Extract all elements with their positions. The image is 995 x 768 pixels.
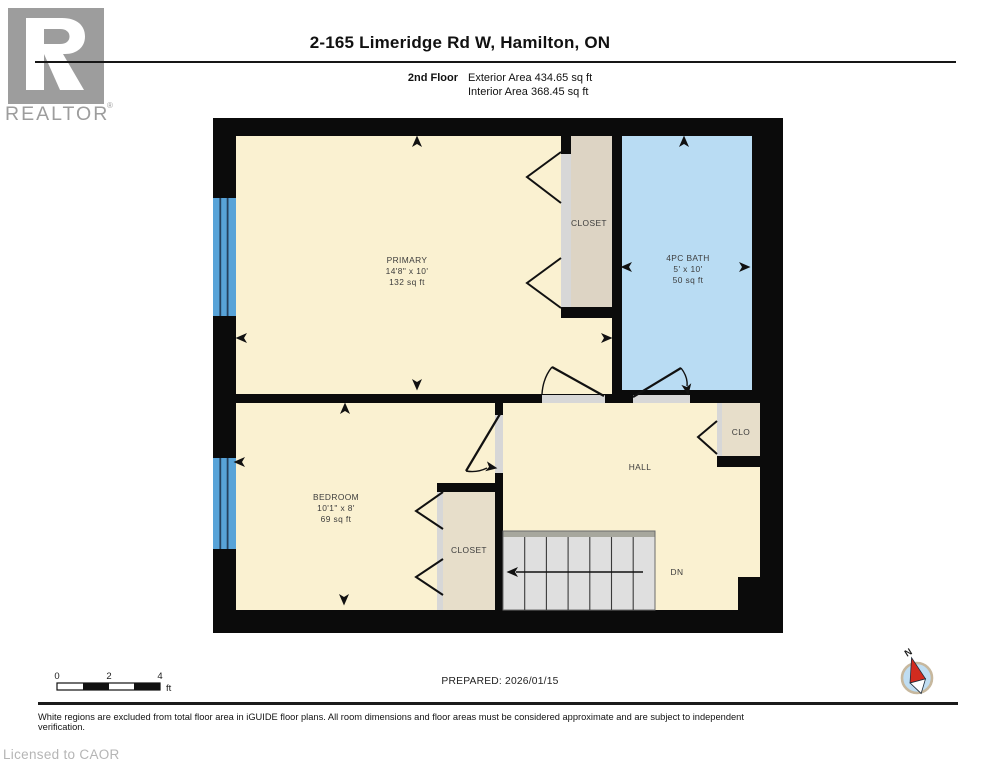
bedroom-closet-label: CLOSET <box>451 545 487 555</box>
scale-tick-2: 2 <box>106 671 111 682</box>
primary-room <box>236 136 612 394</box>
primary-closet-label: CLOSET <box>571 218 607 228</box>
primary-closet-opening <box>561 154 571 307</box>
scale-bar: 0 2 4 ft <box>54 671 171 694</box>
primary-door-opening <box>542 395 605 403</box>
bedroom-door-opening <box>495 415 503 473</box>
primary-label: PRIMARY <box>387 255 428 265</box>
bath-label: 4PC BATH <box>666 253 710 263</box>
clo-closet-opening <box>717 403 722 456</box>
stairs-dn-label: DN <box>671 567 684 577</box>
primary-area: 132 sq ft <box>389 277 425 287</box>
floorplan-drawing: PRIMARY 14'8" x 10' 132 sq ft CLOSET 4PC… <box>0 0 995 768</box>
scale-tick-4: 4 <box>157 671 162 682</box>
primary-window <box>213 198 236 316</box>
bedroom-dims: 10'1" x 8' <box>317 503 355 513</box>
bath-area: 50 sq ft <box>673 275 704 285</box>
bath-door-opening <box>633 395 690 403</box>
footer-divider <box>38 702 958 705</box>
floorplan-page: REALTOR ® 2-165 Limeridge Rd W, Hamilton… <box>0 0 995 768</box>
license-text: Licensed to CAOR <box>3 747 120 762</box>
stairs <box>503 531 655 610</box>
scale-unit: ft <box>166 683 172 694</box>
compass-north-label: N <box>903 647 915 660</box>
primary-dims: 14'8" x 10' <box>386 266 429 276</box>
bedroom-area: 69 sq ft <box>321 514 352 524</box>
disclaimer-text: White regions are excluded from total fl… <box>38 712 778 732</box>
clo-label: CLO <box>732 427 751 437</box>
compass-icon: N <box>902 647 932 696</box>
prepared-date: PREPARED: 2026/01/15 <box>380 676 620 687</box>
bath-room <box>622 136 752 390</box>
bedroom-window <box>213 458 236 549</box>
bath-dims: 5' x 10' <box>673 264 702 274</box>
scale-tick-0: 0 <box>54 671 59 682</box>
hall-label: HALL <box>629 462 652 472</box>
bedroom-label: BEDROOM <box>313 492 359 502</box>
